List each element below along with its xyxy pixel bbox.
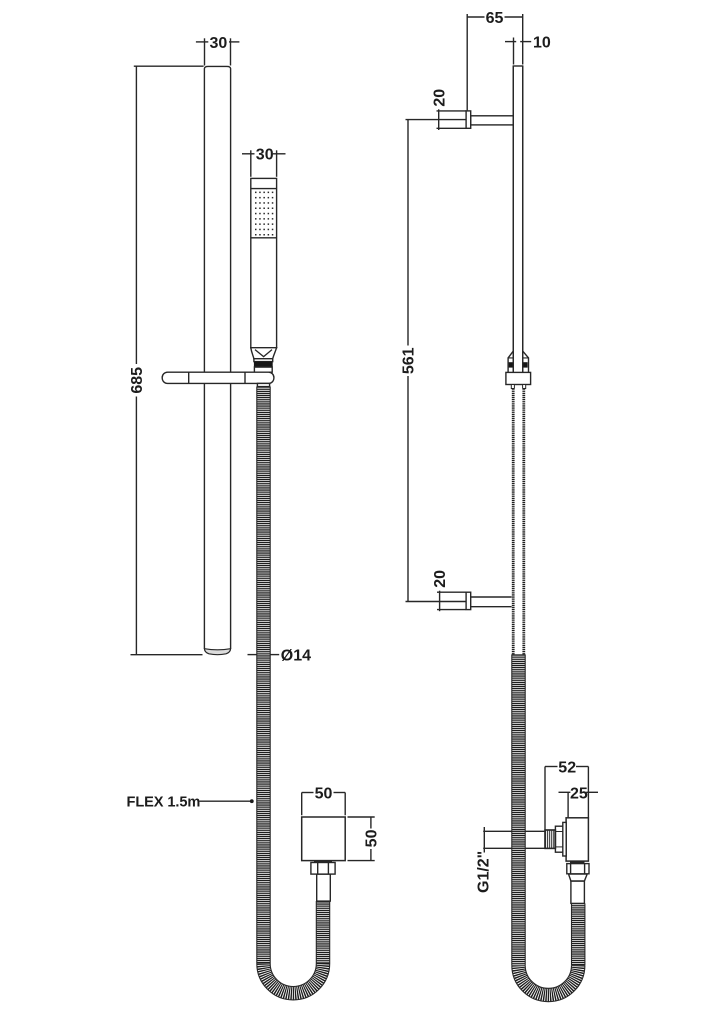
svg-text:Ø14: Ø14 bbox=[281, 647, 311, 664]
svg-text:10: 10 bbox=[533, 34, 551, 51]
svg-text:20: 20 bbox=[431, 89, 448, 107]
svg-text:561: 561 bbox=[401, 347, 418, 374]
svg-text:25: 25 bbox=[570, 785, 588, 802]
svg-text:30: 30 bbox=[210, 35, 228, 52]
svg-text:30: 30 bbox=[256, 147, 274, 164]
svg-text:20: 20 bbox=[432, 570, 449, 588]
svg-text:65: 65 bbox=[486, 10, 504, 27]
svg-text:G1/2": G1/2" bbox=[475, 851, 492, 893]
svg-text:50: 50 bbox=[315, 785, 333, 802]
svg-text:685: 685 bbox=[129, 367, 146, 394]
svg-text:FLEX 1.5m: FLEX 1.5m bbox=[127, 795, 201, 811]
svg-text:52: 52 bbox=[558, 760, 576, 777]
svg-text:50: 50 bbox=[364, 829, 381, 847]
